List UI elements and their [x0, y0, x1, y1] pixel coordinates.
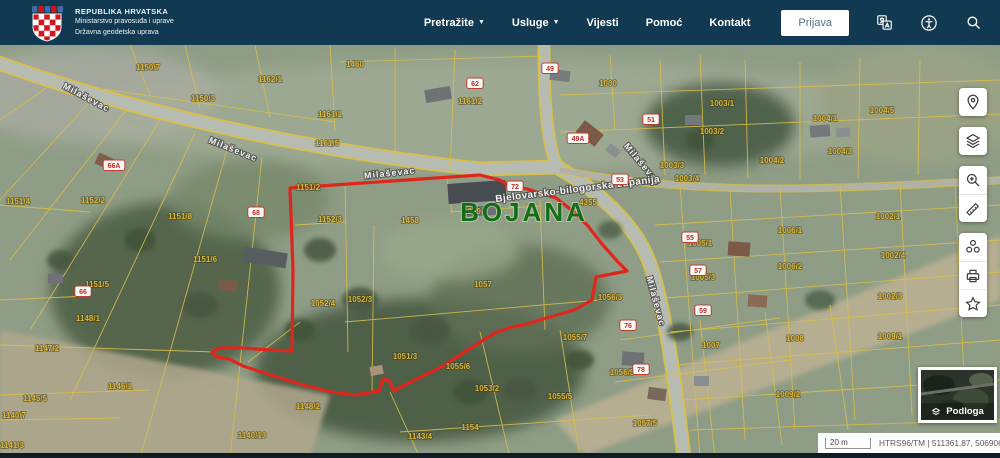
house-number: 53 — [616, 177, 624, 184]
parcel-number-label: 1009/1 — [878, 332, 903, 341]
nav-kontakt[interactable]: Kontakt — [709, 17, 750, 29]
parcel-number-label: 1056/3 — [598, 293, 623, 302]
parcel-number-label: 1051/3 — [393, 352, 418, 361]
nav-vijesti[interactable]: Vijesti — [587, 17, 619, 29]
parcel-number-label: 1002/1 — [876, 212, 901, 221]
parcel-number-label: 1143/4 — [408, 432, 433, 441]
nav-usluge[interactable]: Usluge▼ — [512, 17, 560, 29]
org-line-3: Državna geodetska uprava — [75, 28, 174, 39]
house-number: 51 — [647, 117, 655, 124]
layers-icon — [964, 132, 982, 150]
parcel-number-label: 1140/7 — [2, 411, 27, 420]
printer-icon — [964, 267, 982, 285]
parcel-number-label: 1141/3 — [0, 441, 25, 450]
parcel-number-label: 1004/5 — [870, 106, 895, 115]
parcel-number-label: 1148/1 — [76, 314, 101, 323]
parcel-number-label: 1151/2 — [296, 183, 321, 192]
nav-pretrazite[interactable]: Pretražite▼ — [424, 17, 485, 29]
translate-icon[interactable] — [876, 14, 893, 31]
map-container: 1150/71162/114601150/31161/11161/21161/5… — [0, 45, 1000, 458]
house-number: 55 — [686, 235, 694, 242]
parcel-number-label: 1002/4 — [881, 251, 906, 260]
parcel-number-label: 1151/6 — [193, 255, 218, 264]
house-number: 57 — [694, 268, 702, 275]
parcel-number-label: 1002/3 — [878, 292, 903, 301]
parcel-number-label: 1152/3 — [318, 215, 343, 224]
layers-button[interactable] — [959, 127, 987, 155]
parcel-number-label: 1006/2 — [778, 262, 803, 271]
basemap-layers-icon — [931, 407, 941, 417]
parcel-number-label: 1151/4 — [6, 197, 31, 206]
parcel-number-label: 1052/4 — [311, 299, 336, 308]
parcel-number-label: 1147/2 — [35, 344, 60, 353]
parcel-number-label: 1007 — [702, 341, 720, 350]
parcel-number-label: 1458 — [401, 216, 419, 225]
parcel-number-label: 1004/3 — [828, 147, 853, 156]
locate-button[interactable] — [959, 88, 987, 116]
house-number: 66A — [108, 163, 121, 170]
statusbar: 20 m HTRS96/TM | 511361.87, 5069069.98 — [818, 433, 1000, 453]
star-icon — [964, 295, 982, 313]
org-line-1: REPUBLIKA HRVATSKA — [75, 6, 174, 18]
parcel-number-label: 1151/8 — [168, 212, 193, 221]
parcel-number-label: 1004/1 — [813, 114, 838, 123]
parcel-number-label: 1150/7 — [136, 63, 161, 72]
parcel-number-label: 1154 — [461, 423, 479, 432]
parcel-number-label: 1000 — [599, 79, 617, 88]
parcel-number-label: 1161/1 — [318, 110, 343, 119]
chevron-down-icon: ▼ — [553, 19, 560, 26]
share-button[interactable] — [959, 233, 987, 261]
nav-pomoc[interactable]: Pomoć — [646, 17, 683, 29]
basemap-label: Podloga — [921, 403, 994, 420]
header: REPUBLIKA HRVATSKA Ministarstvo pravosuđ… — [0, 0, 1000, 45]
scale-bar: 20 m — [825, 438, 871, 449]
ruler-icon — [964, 200, 982, 218]
search-icon[interactable] — [965, 14, 982, 31]
parcel-number-label: 1056/5 — [610, 368, 635, 377]
parcel-number-label: 1053/2 — [475, 384, 500, 393]
parcel-number-label: 1150/3 — [191, 94, 216, 103]
parcel-number-label: 1055/7 — [563, 333, 588, 342]
crs-coordinates: HTRS96/TM | 511361.87, 5069069.98 — [879, 438, 1000, 448]
dgu-geoportal-app: REPUBLIKA HRVATSKA Ministarstvo pravosuđ… — [0, 0, 1000, 458]
croatian-coat-of-arms — [30, 4, 64, 42]
parcel-number-label: 1152/2 — [81, 196, 106, 205]
house-number: 59 — [699, 308, 707, 315]
measure-button[interactable] — [959, 194, 987, 222]
map-toolbar — [959, 88, 987, 317]
house-number: 49 — [546, 66, 554, 73]
parcel-number-label: 1055/6 — [446, 362, 471, 371]
magnifier-plus-icon — [964, 171, 982, 189]
parcel-number-label: 1009/2 — [776, 390, 801, 399]
main-nav: Pretražite▼ Usluge▼ Vijesti Pomoć Kontak… — [424, 10, 982, 36]
parcel-number-label: 1145/5 — [23, 394, 48, 403]
house-number: 68 — [252, 210, 260, 217]
parcel-number-label: 1003/1 — [710, 99, 735, 108]
house-number: 78 — [637, 367, 645, 374]
parcel-number-label: 1057/5 — [633, 419, 658, 428]
parcel-number-label: 1003/2 — [700, 127, 725, 136]
chevron-down-icon: ▼ — [478, 19, 485, 26]
print-button[interactable] — [959, 261, 987, 289]
parcel-number-label: 1140/13 — [238, 431, 267, 440]
org-line-2: Ministarstvo pravosuđa i uprave — [75, 17, 174, 28]
parcel-number-label: 1052/3 — [348, 295, 373, 304]
org-name-block: REPUBLIKA HRVATSKA Ministarstvo pravosuđ… — [75, 6, 174, 39]
parcel-number-label: 1057 — [474, 280, 492, 289]
parcel-number-label: 1460 — [346, 60, 364, 69]
zoom-area-button[interactable] — [959, 166, 987, 194]
accessibility-icon[interactable] — [920, 14, 938, 32]
basemap-toggle[interactable]: Podloga — [918, 367, 997, 423]
parcel-number-label: 1148/2 — [296, 402, 321, 411]
parcel-number-label: 1004/2 — [760, 156, 785, 165]
bottom-strip — [0, 453, 1000, 458]
parcel-number-label: 1008 — [786, 334, 804, 343]
location-pin-icon — [964, 93, 982, 111]
map-canvas[interactable]: 1150/71162/114601150/31161/11161/21161/5… — [0, 45, 1000, 458]
parcel-number-label: 1003/3 — [660, 161, 685, 170]
brand[interactable]: REPUBLIKA HRVATSKA Ministarstvo pravosuđ… — [30, 4, 174, 42]
parcel-number-label: 1003/4 — [675, 174, 700, 183]
login-button[interactable]: Prijava — [781, 10, 849, 36]
house-number: 62 — [471, 81, 479, 88]
parcel-number-label: 1161/5 — [315, 139, 340, 148]
house-number: 49A — [572, 136, 585, 143]
share-icon — [964, 238, 982, 256]
favorites-button[interactable] — [959, 289, 987, 317]
house-number: 72 — [511, 184, 519, 191]
parcel-number-label: 1162/1 — [258, 75, 283, 84]
parcel-number-label: 1146/1 — [108, 382, 133, 391]
parcel-number-label: 1006/1 — [778, 226, 803, 235]
house-number: 66 — [79, 289, 87, 296]
house-number: 76 — [624, 323, 632, 330]
parcel-number-label: 1161/2 — [458, 97, 483, 106]
parcel-number-label: 1055/5 — [548, 392, 573, 401]
